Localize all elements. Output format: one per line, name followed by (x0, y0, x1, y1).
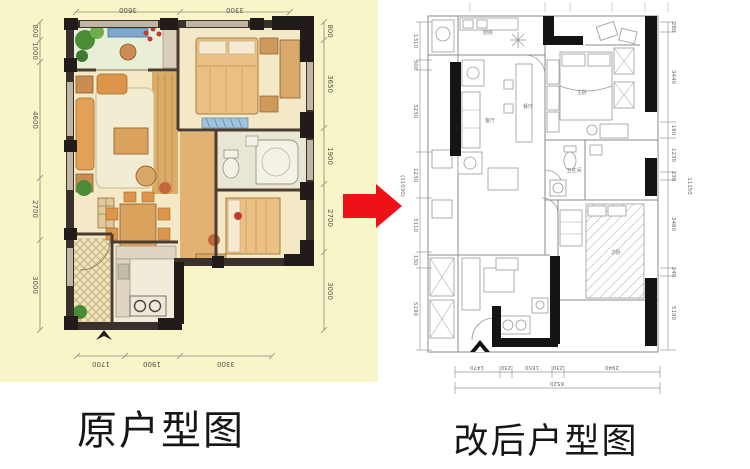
pillow (228, 200, 240, 252)
sink (246, 136, 258, 146)
dim-label: 4600 (31, 111, 39, 129)
room-label: 主卧 (577, 89, 587, 96)
wardrobe (280, 40, 300, 98)
shelf (590, 145, 602, 155)
dim-label: 3440 (670, 70, 676, 84)
dim-label: 3480 (670, 217, 676, 231)
original-plan-title: 原户型图 (0, 398, 322, 456)
dim-total-label: 6520 (550, 380, 564, 386)
room-label: 客厅 (485, 117, 495, 124)
lounge-chair (136, 166, 156, 186)
dim-label: 240 (670, 267, 676, 278)
cushion (234, 212, 242, 220)
entrance-arrow-icon (470, 340, 490, 352)
room-label: 厨房 (483, 29, 493, 36)
dim-label: 3300 (226, 6, 244, 14)
dim-label: 1230 (412, 168, 418, 182)
dim-label: 1700 (92, 360, 110, 368)
stool (208, 234, 220, 246)
basin (587, 125, 597, 135)
chair (106, 208, 118, 220)
washer (550, 180, 566, 196)
dim-label: 230 (500, 364, 511, 370)
dim-label: 3230 (412, 104, 418, 118)
screenshot-canvas: 3600 3300 1700 1900 3300 800 1000 4600 2… (0, 0, 750, 469)
chair (158, 208, 170, 220)
dim-label: 800 (31, 24, 39, 37)
furniture (430, 18, 644, 338)
dim-label: 5190 (412, 302, 418, 316)
dim-label: 230 (552, 364, 563, 370)
side-cabinet (76, 76, 93, 93)
chair (158, 228, 170, 240)
armchair (97, 74, 127, 94)
dim-label: 1900 (143, 360, 161, 368)
dim-label: 3600 (119, 6, 137, 14)
dresser (600, 124, 628, 138)
kitchen-sink (118, 264, 129, 279)
plant (76, 180, 92, 196)
pillow (588, 206, 606, 216)
stove (500, 316, 530, 334)
plant-icon (76, 50, 88, 62)
kitchen-counter (432, 20, 454, 52)
top-dim-ticks (470, 2, 668, 12)
entrance-arrow-icon (96, 330, 112, 340)
dim-label: 1470 (470, 364, 484, 370)
balcony-chair (619, 28, 637, 44)
pillow (229, 41, 255, 54)
dim-label: 230 (670, 171, 676, 182)
dim-label: 3110 (412, 218, 418, 232)
counter-niche (163, 28, 177, 68)
dim-label: 2940 (605, 364, 619, 370)
chair (124, 192, 136, 202)
side-cabinet (560, 210, 582, 246)
dim-label: 3300 (217, 360, 235, 368)
dim-label: 3650 (326, 75, 334, 93)
sofa (462, 92, 480, 148)
cabinet (458, 152, 482, 174)
wardrobe-unit (547, 60, 559, 84)
room-label: 次卧 (611, 249, 621, 256)
coffee-table (114, 128, 148, 154)
chair (504, 80, 513, 89)
pillow (608, 206, 626, 216)
dim-total-label: (11030) (399, 175, 405, 197)
modified-plan-title: 改后户型图 (396, 413, 696, 464)
dim-label: 2700 (326, 209, 334, 227)
nightstand (260, 96, 278, 112)
original-plan-panel: 3600 3300 1700 1900 3300 800 1000 4600 2… (0, 0, 378, 382)
chair (504, 104, 513, 113)
dim-label: 1230 (670, 148, 676, 162)
dim-label: 5190 (670, 306, 676, 320)
coffee-table (488, 168, 518, 190)
dim-label: 1900 (326, 147, 334, 165)
dim-label: 1650 (525, 364, 539, 370)
sink (532, 298, 548, 313)
dim-label: 300 (412, 60, 418, 71)
pillow (199, 41, 226, 54)
kitchen-counter (116, 246, 176, 259)
dim-label: 180 (670, 125, 676, 136)
room-label: 卫生间 (566, 167, 581, 174)
wardrobe-unit (547, 112, 559, 132)
dim-label: 130 (412, 255, 418, 266)
modified-floorplan-drawing: 厨房 主卧 客厅 餐厅 卫生间 次卧 (392, 0, 750, 402)
dim-total-label: 11150 (686, 177, 692, 195)
dim-label: 800 (326, 24, 334, 37)
dim-label: 280 (670, 22, 676, 33)
sofa (76, 98, 94, 170)
dim-label: 1000 (31, 42, 39, 60)
tv-unit (462, 60, 484, 86)
dim-label: 1310 (412, 34, 418, 48)
bed (560, 52, 612, 120)
dim-label: 3000 (326, 282, 334, 300)
nightstand (260, 38, 278, 54)
sofa-2 (462, 258, 480, 310)
table-2 (484, 268, 514, 292)
dim-label: 3000 (31, 276, 39, 294)
original-floorplan-drawing: 3600 3300 1700 1900 3300 800 1000 4600 2… (0, 0, 378, 382)
window-box (108, 28, 148, 37)
dim-label: 2700 (31, 200, 39, 218)
wardrobe-unit (547, 86, 559, 110)
room-label: 餐厅 (523, 103, 533, 110)
balcony-chair (596, 22, 617, 41)
chair (142, 192, 154, 202)
toilet (223, 158, 239, 178)
fan-icon (510, 32, 526, 48)
round-table (120, 44, 136, 60)
dining-table (516, 64, 532, 142)
